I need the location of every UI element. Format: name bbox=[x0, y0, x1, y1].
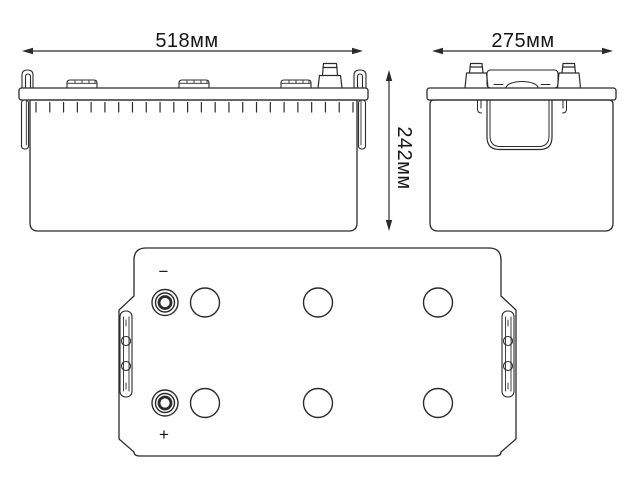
battery-diagram: 518мм 275мм 242мм − + bbox=[0, 0, 640, 480]
drawing-canvas: 518мм 275мм 242мм − + bbox=[0, 0, 640, 480]
positive-sign-label: + bbox=[159, 425, 169, 444]
side-width-label: 275мм bbox=[491, 30, 554, 52]
negative-sign-label: − bbox=[159, 262, 169, 281]
background bbox=[0, 0, 640, 480]
front-width-label: 518мм bbox=[155, 30, 218, 52]
height-label: 242мм bbox=[393, 126, 415, 189]
